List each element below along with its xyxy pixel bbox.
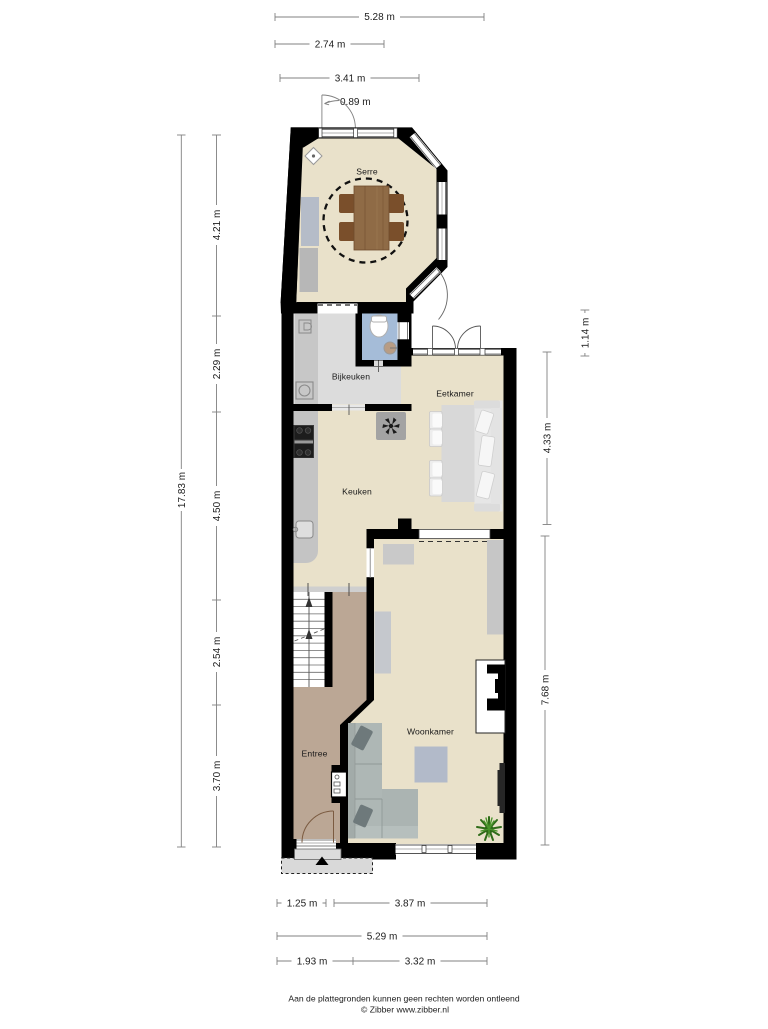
svg-text:1.14 m: 1.14 m — [580, 318, 591, 349]
svg-text:5.28 m: 5.28 m — [364, 12, 395, 23]
svg-text:Entree: Entree — [302, 749, 328, 759]
svg-text:3.87 m: 3.87 m — [395, 899, 426, 910]
svg-text:2.29 m: 2.29 m — [212, 349, 223, 380]
svg-text:7.68 m: 7.68 m — [541, 675, 552, 706]
svg-text:Eetkamer: Eetkamer — [436, 389, 474, 399]
svg-text:Aan de plattegronden kunnen ge: Aan de plattegronden kunnen geen rechten… — [288, 994, 519, 1004]
svg-text:4.50 m: 4.50 m — [212, 491, 223, 522]
svg-text:4.33 m: 4.33 m — [543, 423, 554, 454]
svg-text:3.32 m: 3.32 m — [405, 957, 436, 968]
svg-text:1.93 m: 1.93 m — [297, 957, 328, 968]
svg-text:3.41 m: 3.41 m — [335, 74, 366, 85]
svg-text:17.83 m: 17.83 m — [177, 472, 188, 508]
svg-text:2.74 m: 2.74 m — [315, 40, 346, 51]
svg-text:4.21 m: 4.21 m — [212, 210, 223, 241]
svg-text:© Zibber www.zibber.nl: © Zibber www.zibber.nl — [361, 1005, 449, 1015]
svg-text:1.25 m: 1.25 m — [287, 899, 318, 910]
svg-text:3.70 m: 3.70 m — [212, 761, 223, 792]
svg-text:0.89 m: 0.89 m — [340, 97, 371, 108]
svg-text:Keuken: Keuken — [342, 487, 372, 497]
svg-text:Woonkamer: Woonkamer — [407, 727, 454, 737]
svg-text:5.29 m: 5.29 m — [367, 932, 398, 943]
svg-text:Serre: Serre — [356, 167, 378, 177]
svg-text:2.54 m: 2.54 m — [212, 637, 223, 668]
svg-text:Bijkeuken: Bijkeuken — [332, 372, 370, 382]
